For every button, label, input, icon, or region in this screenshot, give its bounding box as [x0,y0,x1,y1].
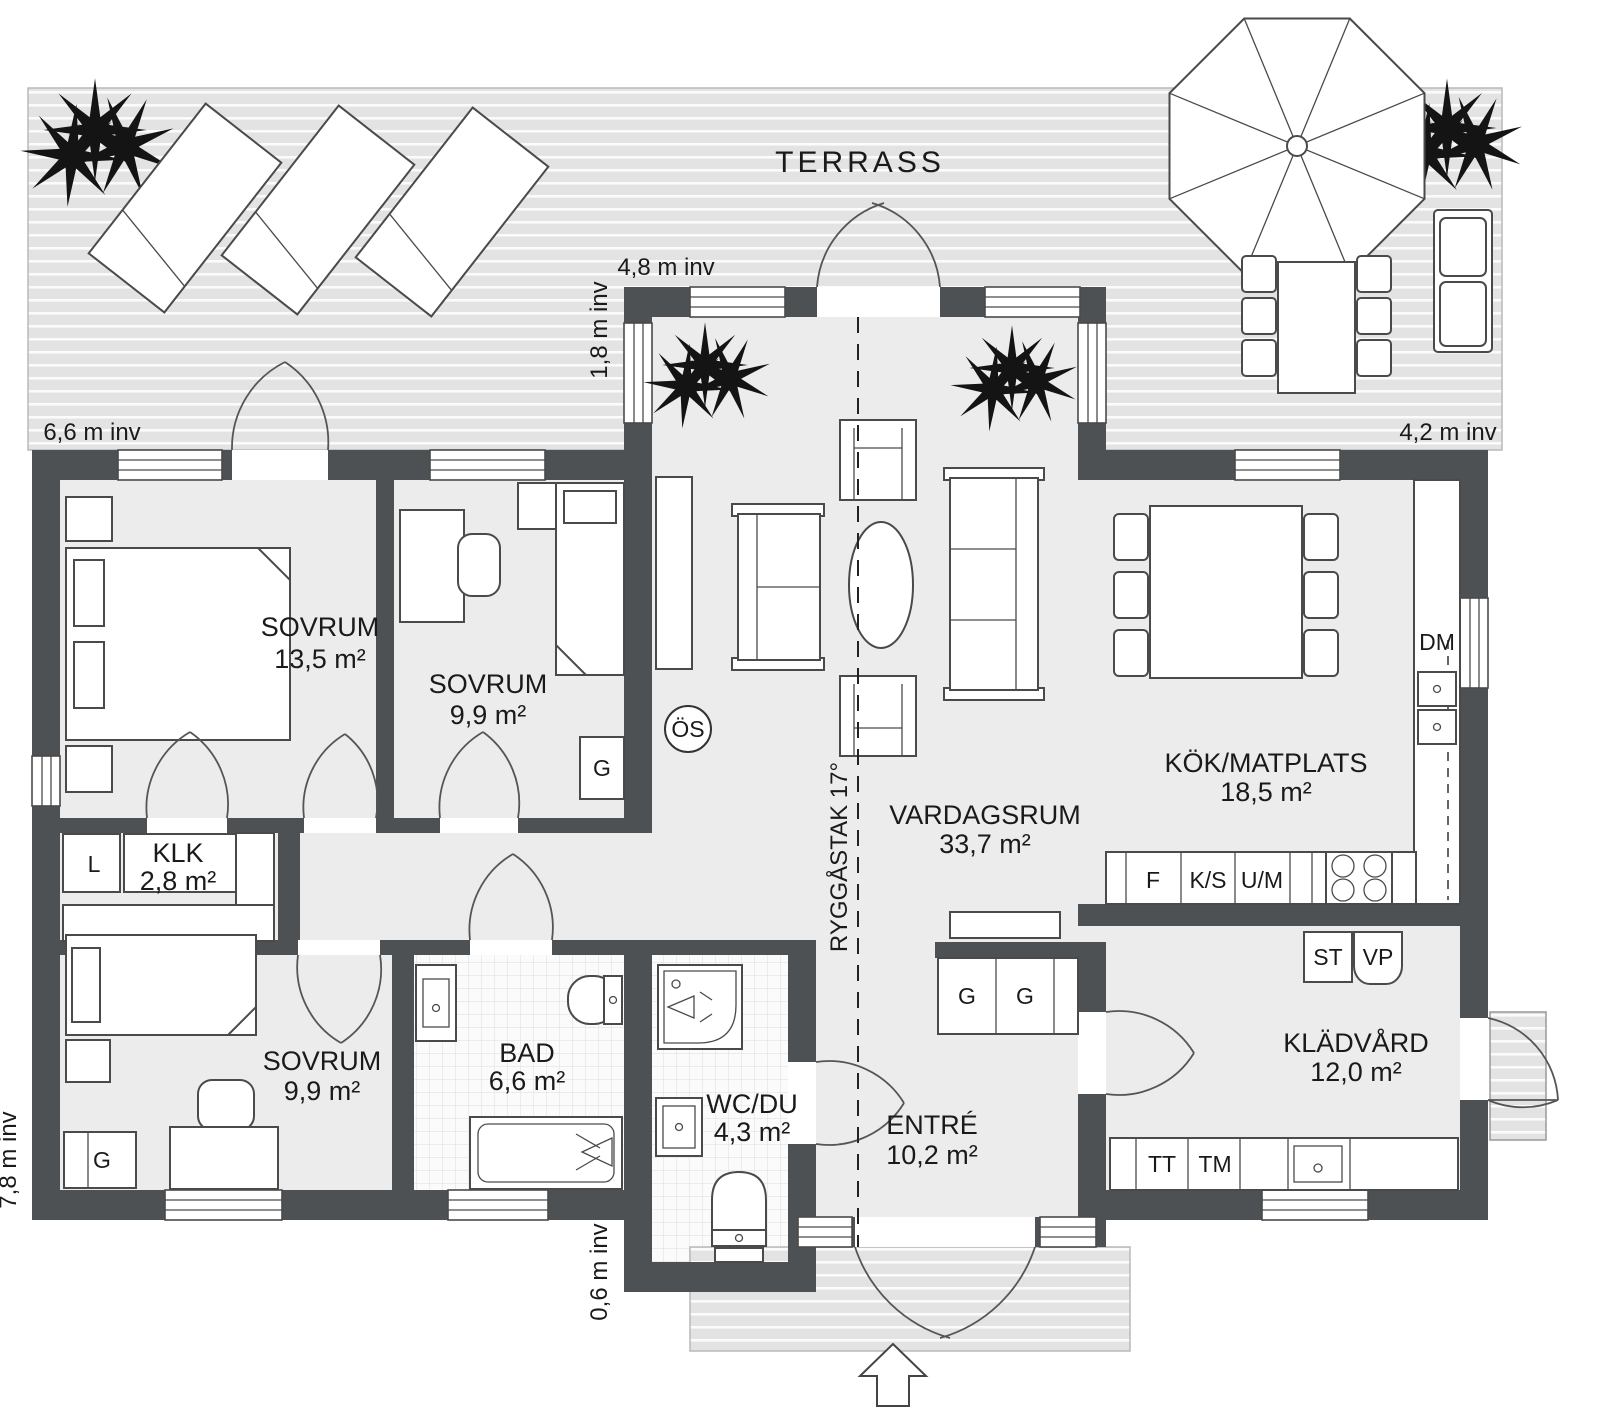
ridge-label: RYGGÅSTAK 17° [825,762,853,952]
kladvard-area: 12,0 m² [1310,1057,1402,1087]
dining-set [1114,506,1338,678]
window [118,450,222,480]
tm-label: TM [1198,1151,1231,1177]
sofa-3seat [944,468,1044,700]
single-bed [66,935,256,1035]
sovrum1-area: 13,5 m² [274,644,366,674]
toilet [568,976,622,1024]
window [624,323,652,423]
terrace-label: TERRASS [775,146,945,179]
shelf [236,833,274,905]
os-marker: ÖS [665,706,711,752]
wcdu-area: 4,3 m² [714,1117,791,1147]
desk-chair [458,534,500,596]
sovrum3-name: SOVRUM [263,1046,382,1076]
dm-label: DM [1419,629,1455,655]
dim-bay-side: 1,8 m inv [586,281,613,378]
floor-passage [1078,480,1106,942]
sovrum3-area: 9,9 m² [284,1076,361,1106]
entrance-arrow-icon [860,1344,926,1406]
armchair [840,420,916,500]
entre-name: ENTRÉ [886,1110,978,1140]
window [430,450,545,480]
floorplan-canvas: ÖS TERRASS 4,8 m inv 1,8 m inv 6,6 m inv… [0,0,1600,1409]
desk-chair [198,1080,254,1130]
kok-area: 18,5 m² [1220,777,1312,807]
window [448,1190,548,1220]
single-bed [556,483,624,675]
desk [170,1127,278,1189]
nightstand [66,1040,110,1082]
dim-right: 4,2 m inv [1399,419,1496,446]
desk [400,510,464,622]
floorplan-page: ÖS TERRASS 4,8 m inv 1,8 m inv 6,6 m inv… [0,0,1600,1409]
dim-left-top: 6,6 m inv [43,419,140,446]
outdoor-dining-set [1242,256,1391,393]
window [690,287,785,317]
sink [656,1098,702,1156]
nightstand [66,497,112,541]
window [1040,1217,1096,1247]
window [985,287,1080,317]
armchair [840,676,916,756]
klk-name: KLK [152,838,203,868]
bad-area: 6,6 m² [489,1066,566,1096]
window [798,1217,852,1247]
tt-label: TT [1148,1151,1176,1177]
window [165,1190,282,1220]
os-label: ÖS [671,716,704,742]
shower [658,965,742,1049]
kitchen-counter-right [1414,480,1460,904]
dim-left-bottom: 7,8 m inv [0,1111,22,1208]
sovrum1-name: SOVRUM [261,612,380,642]
sovrum2-area: 9,9 m² [450,700,527,730]
l-label: L [88,851,101,877]
window [1078,323,1106,423]
kladvard-name: KLÄDVÅRD [1283,1027,1429,1058]
um-label: U/M [1241,867,1283,893]
bad-name: BAD [499,1038,555,1068]
entre-area: 10,2 m² [886,1140,978,1170]
sideboard [950,912,1060,938]
vp-label: VP [1363,944,1394,970]
sink [416,965,456,1041]
sovrum2-name: SOVRUM [429,669,548,699]
vardagsrum-name: VARDAGSRUM [889,800,1081,830]
window [1235,450,1340,480]
ks-label: K/S [1189,867,1226,893]
sofa-2seat [732,504,824,670]
stove [1326,852,1392,904]
fridge-label: F [1146,867,1160,893]
double-bed [66,548,290,740]
vardagsrum-area: 33,7 m² [939,829,1031,859]
wcdu-name: WC/DU [706,1089,797,1119]
window [1262,1190,1368,1220]
dim-bottom-center: 0,6 m inv [586,1223,613,1320]
st-label: ST [1313,944,1342,970]
g-label: G [593,755,611,781]
parasol-icon [1170,19,1425,274]
g-label: G [1016,983,1034,1009]
dim-top: 4,8 m inv [617,254,714,281]
bathtub [470,1117,622,1189]
g-label: G [958,983,976,1009]
nightstand [66,746,112,792]
window [1460,598,1488,688]
bookshelf [656,477,692,669]
g-label: G [93,1147,111,1173]
kok-name: KÖK/MATPLATS [1164,748,1367,778]
toilet [712,1172,766,1262]
window [32,756,60,806]
lounge-chair [1434,210,1492,352]
klk-area: 2,8 m² [140,866,217,896]
